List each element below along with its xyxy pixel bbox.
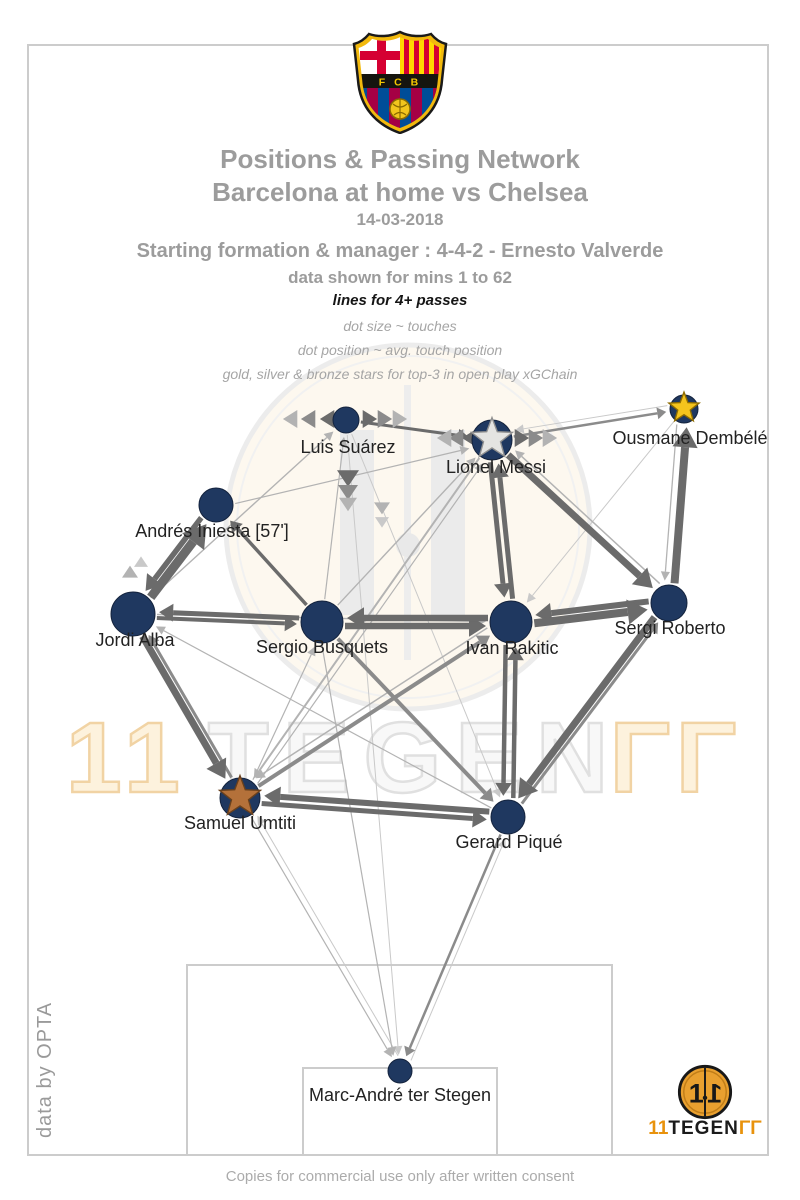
player-node-rakitic (490, 601, 532, 643)
player-node-suarez (333, 407, 359, 433)
player-node-roberto (651, 585, 687, 621)
lines-note: lines for 4+ passes (0, 292, 800, 309)
formation-line: Starting formation & manager : 4-4-2 - E… (0, 240, 800, 263)
logo-text-mid: TEGEN (668, 1118, 738, 1139)
player-label-umtiti: Samuel Umtiti (184, 813, 296, 833)
player-node-pique (491, 800, 525, 834)
logo-text-right: ΓΓ (739, 1118, 762, 1139)
player-label-pique: Gerard Piqué (455, 832, 562, 852)
player-label-dembele: Ousmane Dembélé (612, 428, 767, 448)
match-date: 14-03-2018 (0, 210, 800, 230)
player-label-iniesta: Andrés Iniesta [57'] (135, 521, 289, 541)
page-subtitle: Barcelona at home vs Chelsea (0, 177, 800, 208)
data-credit: data by OPTA (34, 938, 57, 1138)
minutes-line: data shown for mins 1 to 62 (0, 268, 800, 288)
dot-size-note: dot size ~ touches (0, 318, 800, 334)
player-label-roberto: Sergi Roberto (614, 618, 725, 638)
svg-text:11: 11 (66, 702, 188, 814)
fcb-crest-logo: F C B (352, 30, 448, 134)
passing-network-page: 11TEGENΓΓMarc-André ter StegenSamuel Umt… (0, 0, 800, 1200)
svg-text:1: 1 (689, 1079, 704, 1109)
player-label-messi: Lionel Messi (446, 457, 546, 477)
player-node-terstegen (388, 1059, 412, 1083)
crest-text: F C B (379, 77, 421, 89)
logo-text-left: 11 (648, 1118, 668, 1139)
player-label-rakitic: Ivan Rakitic (465, 638, 558, 658)
watermark-text: 11TEGENΓΓ (66, 702, 742, 814)
player-label-alba: Jordi Alba (95, 630, 175, 650)
copyright-caption: Copies for commercial use only after wri… (0, 1168, 800, 1185)
player-label-suarez: Luis Suárez (300, 437, 395, 457)
tegen11-logo-text: 11TEGENΓΓ (630, 1118, 780, 1140)
tegen11-logo-icon: 1 1 (676, 1063, 734, 1121)
svg-text:1: 1 (707, 1079, 722, 1109)
player-label-busquets: Sergio Busquets (256, 637, 388, 657)
svg-text:ΓΓ: ΓΓ (610, 702, 742, 814)
player-label-terstegen: Marc-André ter Stegen (309, 1085, 491, 1105)
player-node-iniesta (199, 488, 233, 522)
dot-position-note: dot position ~ avg. touch position (0, 342, 800, 358)
stars-note: gold, silver & bronze stars for top-3 in… (0, 366, 800, 382)
page-title: Positions & Passing Network (0, 144, 800, 175)
